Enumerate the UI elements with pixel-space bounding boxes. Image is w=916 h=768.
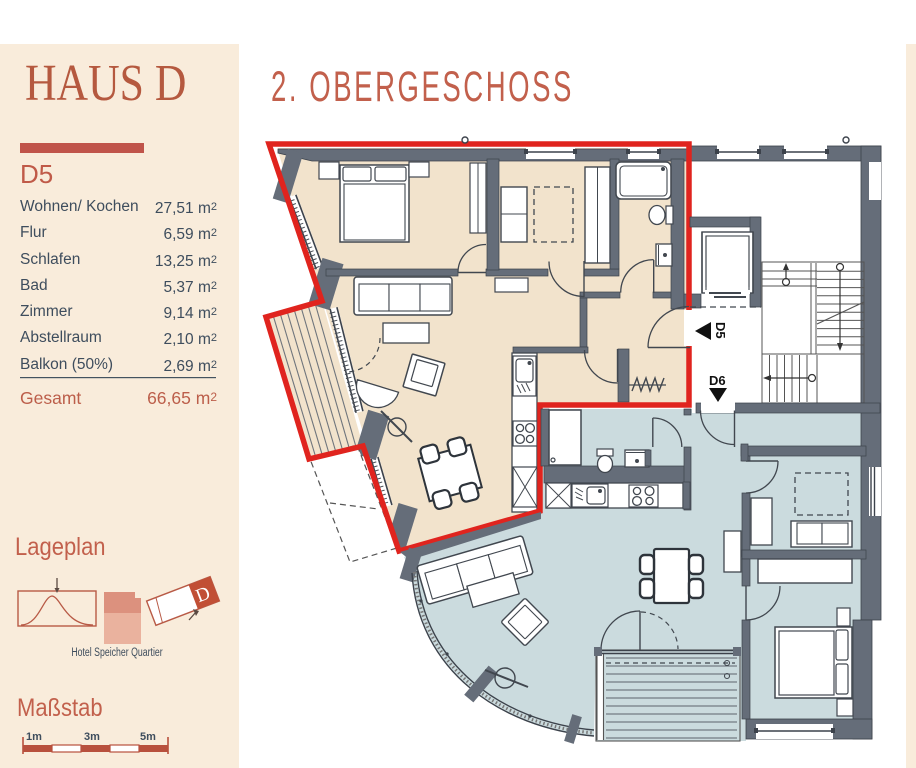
svg-text:D6: D6 — [709, 373, 726, 388]
svg-text:D5: D5 — [713, 322, 728, 339]
